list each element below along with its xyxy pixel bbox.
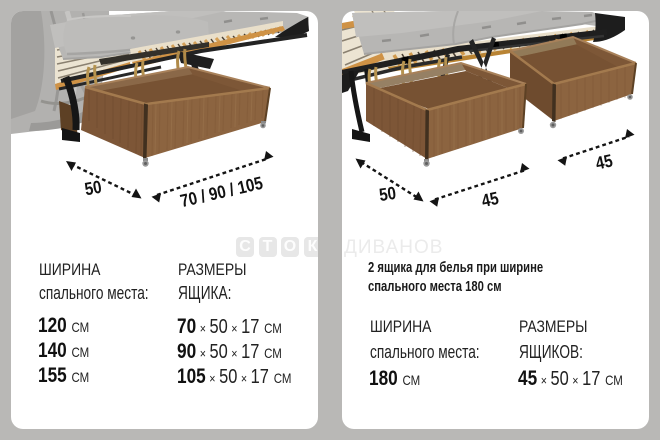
svg-text:45: 45 <box>594 150 615 173</box>
svg-text:70 / 90 / 105: 70 / 90 / 105 <box>178 173 264 211</box>
svg-text:45: 45 <box>480 188 501 211</box>
svg-text:50: 50 <box>378 183 397 205</box>
svg-text:50: 50 <box>83 177 103 200</box>
